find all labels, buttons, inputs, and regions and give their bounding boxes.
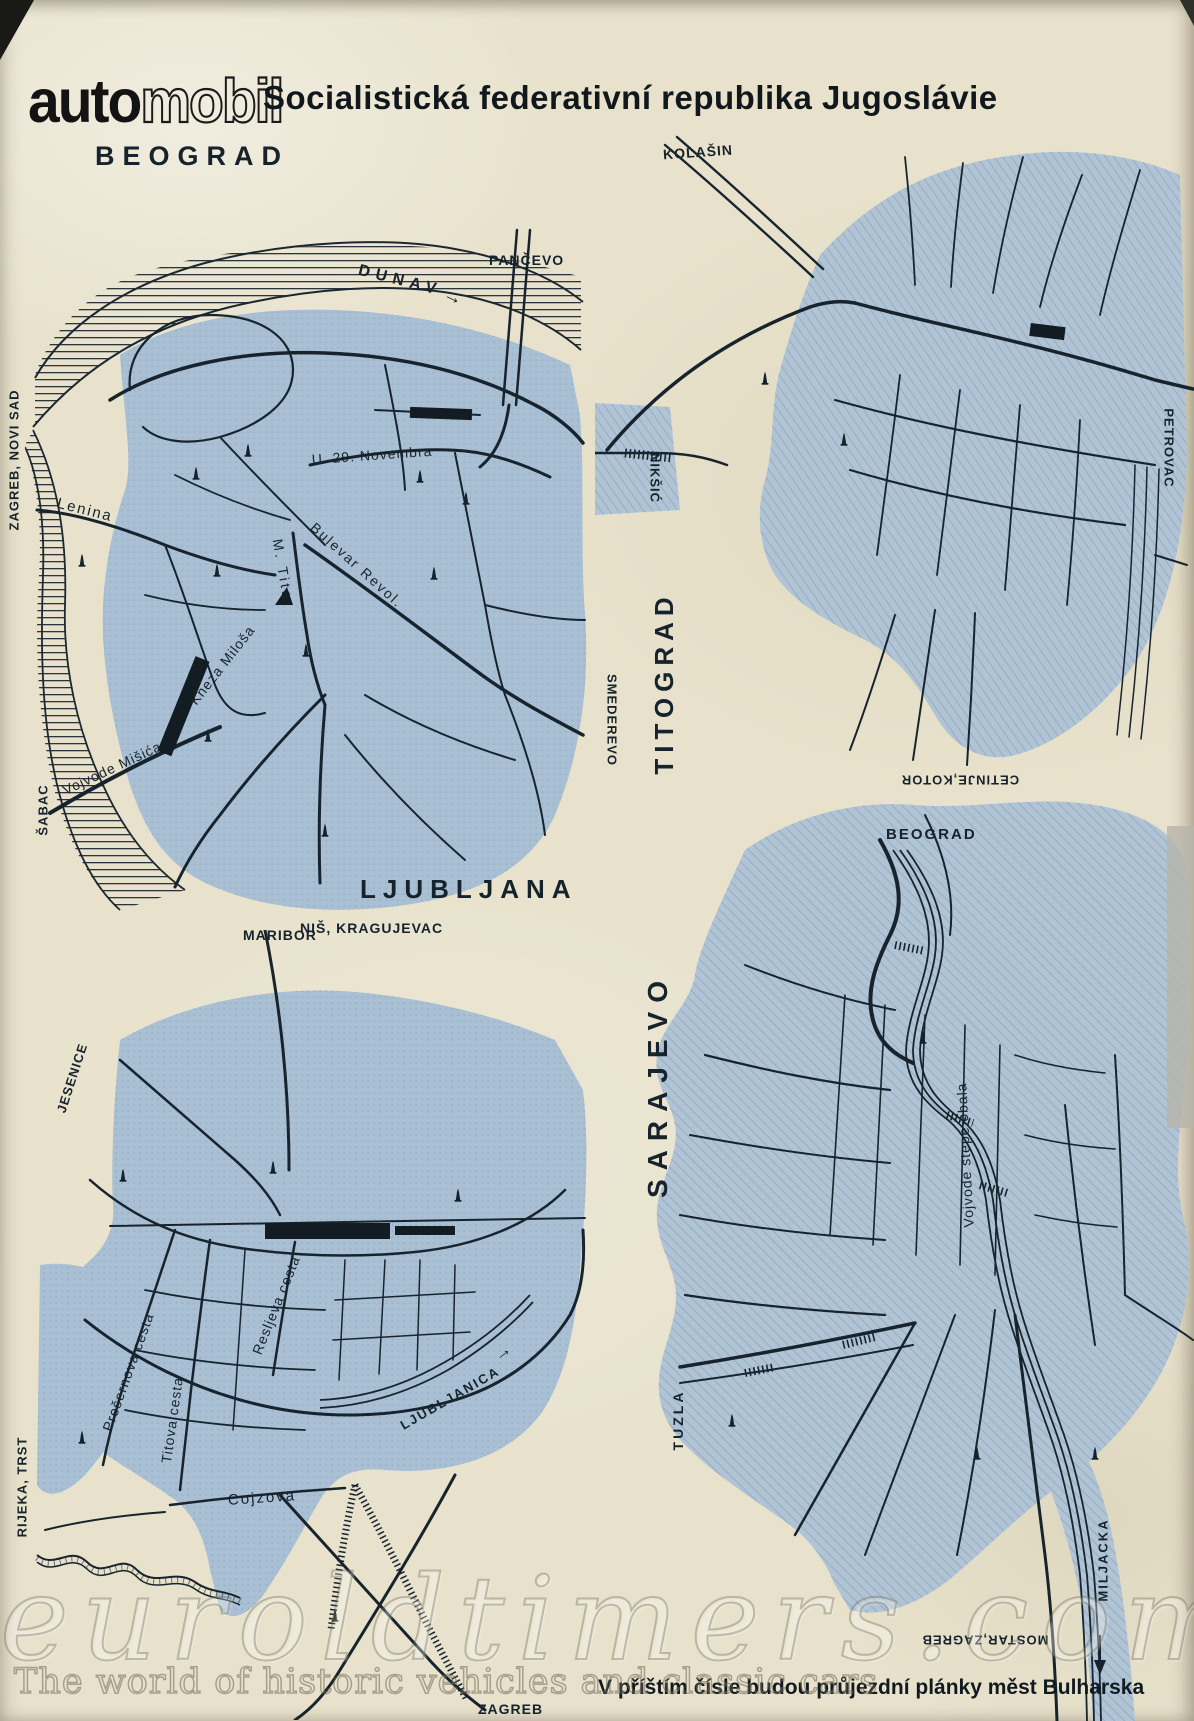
ljubljana-title: LJUBLJANA xyxy=(360,876,578,902)
page-title: Socialistická federativní republika Jugo… xyxy=(263,79,998,117)
zagreb-bottom-label: ZAGREB xyxy=(478,1702,543,1716)
smederevo-label: SMEDEREVO xyxy=(606,674,619,766)
logo-mobil: mobil xyxy=(140,67,282,136)
railway-hatched xyxy=(331,1485,467,1700)
page-edge-artifact xyxy=(1167,826,1194,1128)
next-issue-note: V příštím čísle budou průjezdní plánky m… xyxy=(598,1676,1144,1700)
zagreb-novi-sad-label: ZAGREB, NOVI SAD xyxy=(8,390,21,531)
nis-kragujevac-label: NIŠ, KRAGUJEVAC xyxy=(300,921,443,935)
sarajevo-title: SARAJEVO xyxy=(644,972,672,1198)
beograd-direction-label: BEOGRAD xyxy=(886,827,977,842)
tuzla-label: TUZLA xyxy=(671,1390,685,1451)
magazine-page: automobil Socialistická federativní repu… xyxy=(0,0,1194,1721)
beograd-map-canvas xyxy=(25,215,595,915)
page-edge-nick xyxy=(1180,0,1194,26)
pancevo-label: PANČEVO xyxy=(489,253,564,267)
rijeka-trst-label: RIJEKA, TRST xyxy=(16,1437,29,1538)
mostar-zagreb-label: MOSTAR,ZAGREB xyxy=(922,1634,1049,1647)
cetinje-kotor-label: CETINJE,KOTOR xyxy=(901,774,1019,787)
miljacka-river-label: MILJACKA xyxy=(1097,1518,1110,1601)
page-corner-fold xyxy=(0,0,34,60)
maribor-label: MARIBOR xyxy=(243,928,317,942)
beograd-title: BEOGRAD xyxy=(95,143,289,170)
ljubljana-map-canvas xyxy=(25,930,600,1720)
sabac-label: ŠABAC xyxy=(37,784,50,835)
city-area xyxy=(103,310,587,910)
titograd-title: TITOGRAD xyxy=(651,591,677,774)
niksic-label: NIKŠIĆ xyxy=(649,453,662,503)
magazine-logo: automobil xyxy=(28,66,282,137)
titograd-map-canvas xyxy=(595,135,1194,785)
logo-auto: auto xyxy=(28,67,140,136)
city-area xyxy=(37,990,586,1616)
petrovac-label: PETROVAC xyxy=(1163,408,1176,487)
